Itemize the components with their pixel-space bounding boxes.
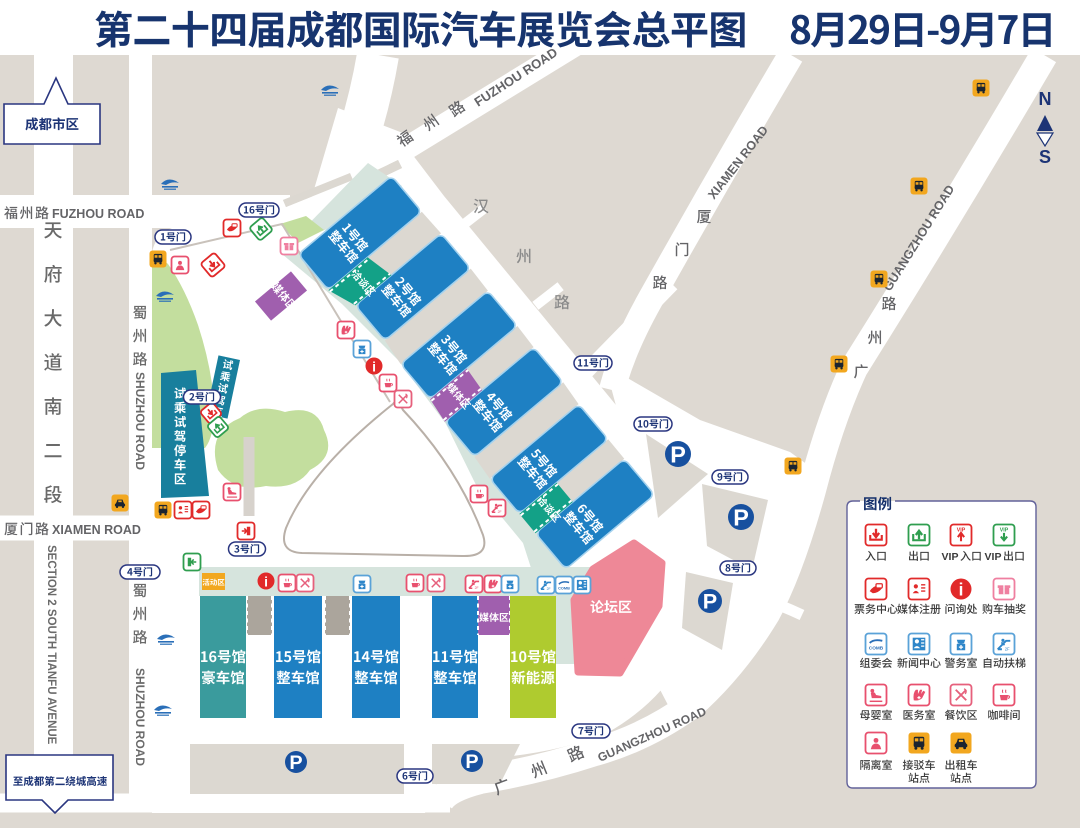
- svg-text:P: P: [670, 441, 686, 467]
- svg-text:i: i: [372, 358, 376, 374]
- svg-text:COMB: COMB: [869, 645, 884, 651]
- svg-text:P: P: [733, 504, 749, 530]
- svg-text:SHUZHOU ROAD: SHUZHOU ROAD: [133, 668, 147, 766]
- svg-text:S: S: [1039, 147, 1051, 167]
- svg-text:N: N: [1039, 89, 1052, 109]
- svg-text:2F: 2F: [547, 587, 551, 591]
- svg-text:i: i: [959, 580, 964, 600]
- svg-text:VIP: VIP: [1000, 527, 1009, 533]
- svg-text:XIAMEN ROAD: XIAMEN ROAD: [52, 523, 141, 537]
- svg-text:SECTION 2 SOUTH TIANFU AVENUE: SECTION 2 SOUTH TIANFU AVENUE: [45, 545, 57, 745]
- svg-text:2F: 2F: [475, 586, 479, 590]
- svg-text:VIP: VIP: [985, 551, 1002, 563]
- svg-text:SHUZHOU ROAD: SHUZHOU ROAD: [133, 372, 147, 470]
- svg-text:2F: 2F: [1005, 646, 1010, 651]
- svg-text:COMB: COMB: [558, 586, 570, 590]
- svg-text:P: P: [703, 589, 717, 614]
- svg-text:VIP: VIP: [942, 551, 959, 563]
- svg-text:i: i: [264, 573, 268, 589]
- svg-text:2F: 2F: [498, 510, 502, 514]
- svg-text:P: P: [289, 752, 302, 774]
- svg-text:P: P: [465, 751, 478, 773]
- svg-text:FUZHOU ROAD: FUZHOU ROAD: [52, 207, 144, 221]
